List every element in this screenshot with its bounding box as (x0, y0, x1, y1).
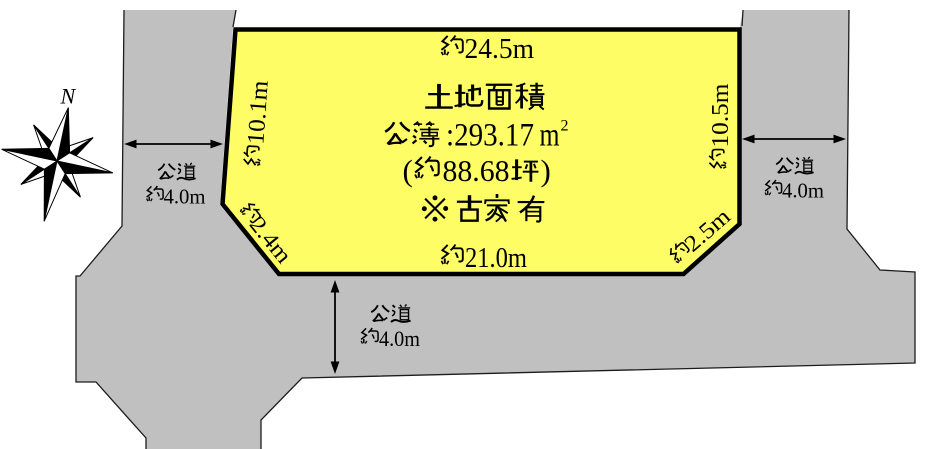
svg-text:4.0m: 4.0m (379, 326, 420, 351)
svg-text:10.5m: 10.5m (708, 83, 734, 147)
svg-text:4.0m: 4.0m (164, 185, 206, 209)
svg-text:88.68: 88.68 (443, 153, 510, 188)
svg-text:2: 2 (561, 118, 569, 135)
svg-text:N: N (60, 84, 77, 109)
svg-text:): ) (541, 153, 551, 188)
svg-text:(: ( (403, 153, 413, 188)
svg-text:10.1m: 10.1m (243, 79, 273, 145)
svg-text::293.17: :293.17 (446, 118, 534, 154)
svg-text:m: m (540, 118, 560, 154)
svg-text:24.5m: 24.5m (465, 34, 535, 65)
svg-text:21.0m: 21.0m (465, 243, 527, 274)
svg-text:4.0m: 4.0m (782, 179, 824, 203)
